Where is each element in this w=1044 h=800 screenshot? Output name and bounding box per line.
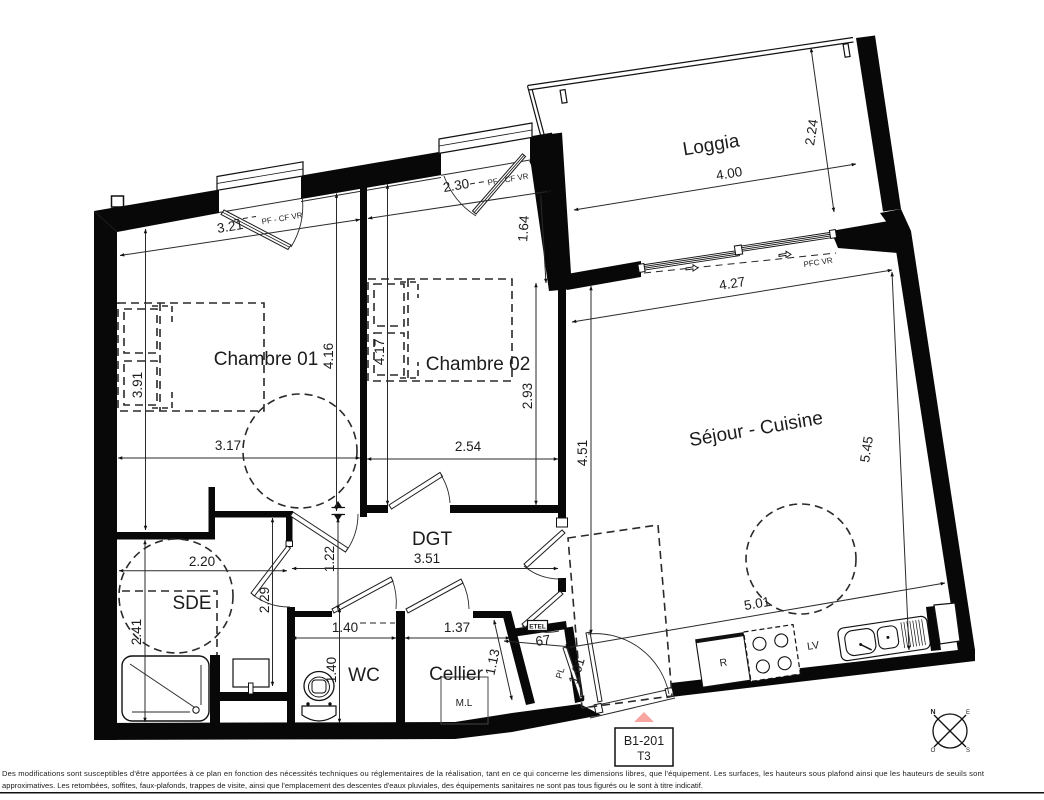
svg-text:Des modifications sont suscept: Des modifications sont susceptibles d'êt… <box>2 769 985 778</box>
svg-text:3.51: 3.51 <box>414 551 440 566</box>
svg-text:O: O <box>931 748 936 754</box>
svg-text:ETEL: ETEL <box>529 624 546 631</box>
svg-text:3.17: 3.17 <box>215 438 241 453</box>
svg-text:1.40: 1.40 <box>324 657 339 683</box>
svg-text:4.17: 4.17 <box>372 339 387 365</box>
svg-text:LV: LV <box>806 639 820 653</box>
svg-text:1.40: 1.40 <box>332 620 358 635</box>
svg-text:PF - CF VR: PF - CF VR <box>487 172 529 188</box>
svg-text:2.30: 2.30 <box>442 176 470 195</box>
svg-text:T3: T3 <box>637 751 650 763</box>
svg-text:B1-201: B1-201 <box>624 734 664 748</box>
svg-text:Chambre 01: Chambre 01 <box>214 349 319 370</box>
svg-text:PF - CF VR: PF - CF VR <box>261 211 303 227</box>
svg-text:SDE: SDE <box>172 593 211 614</box>
svg-text:S: S <box>966 748 970 754</box>
svg-text:M.L: M.L <box>456 698 473 709</box>
svg-text:2.20: 2.20 <box>189 554 215 569</box>
svg-text:4.27: 4.27 <box>718 274 746 293</box>
svg-text:4.16: 4.16 <box>321 343 336 369</box>
svg-text:Chambre 02: Chambre 02 <box>426 354 531 375</box>
svg-text:1.37: 1.37 <box>444 620 470 635</box>
svg-text:2.54: 2.54 <box>455 439 482 454</box>
svg-text:E: E <box>966 710 970 716</box>
svg-text:1.13: 1.13 <box>483 648 503 677</box>
svg-text:DGT: DGT <box>412 529 453 550</box>
svg-text:4.51: 4.51 <box>575 440 590 466</box>
svg-text:2.29: 2.29 <box>257 587 272 613</box>
svg-text:Loggia: Loggia <box>681 130 741 160</box>
svg-text:approximatives. Les retombées,: approximatives. Les retombées, soffites,… <box>2 781 703 790</box>
svg-text:5.45: 5.45 <box>857 435 876 463</box>
svg-text:PL: PL <box>554 666 567 679</box>
svg-text:2.41: 2.41 <box>129 619 144 645</box>
svg-text:4.00: 4.00 <box>715 164 743 183</box>
svg-text:Séjour - Cuisine: Séjour - Cuisine <box>688 408 825 451</box>
svg-text:PFC VR: PFC VR <box>803 256 834 270</box>
svg-text:2.93: 2.93 <box>520 383 535 409</box>
svg-text:1.64: 1.64 <box>515 215 532 243</box>
svg-text:Cellier: Cellier <box>429 664 484 685</box>
svg-text:2.24: 2.24 <box>802 118 821 147</box>
svg-text:3.91: 3.91 <box>130 372 145 398</box>
svg-text:3.21: 3.21 <box>216 217 244 236</box>
svg-text:67: 67 <box>534 632 551 649</box>
svg-text:N: N <box>930 709 935 716</box>
svg-text:5.01: 5.01 <box>743 594 771 613</box>
svg-text:WC: WC <box>348 665 380 686</box>
